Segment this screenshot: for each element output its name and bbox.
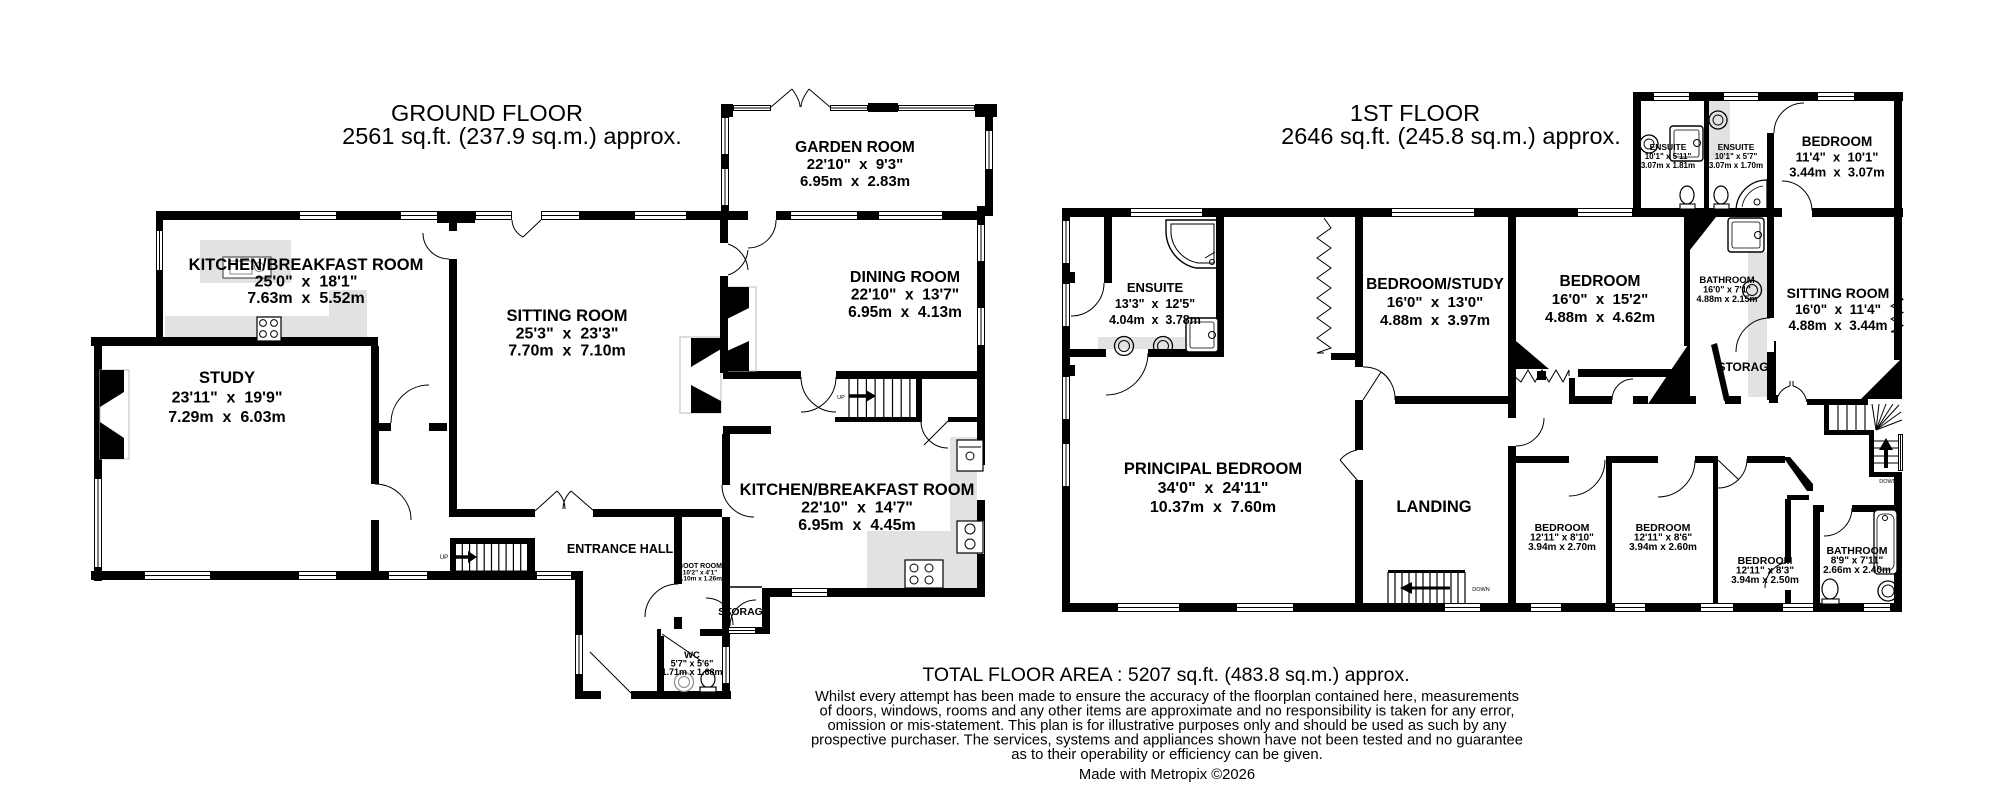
svg-text:STORAGE: STORAGE (1717, 360, 1776, 374)
svg-text:2561 sq.ft. (237.9 sq.m.) appr: 2561 sq.ft. (237.9 sq.m.) approx. (342, 123, 682, 149)
svg-text:as to their operability or eff: as to their operability or efficiency ca… (1011, 747, 1322, 763)
svg-text:10'1" x 5'7": 10'1" x 5'7" (1715, 152, 1758, 161)
svg-text:BEDROOM/STUDY: BEDROOM/STUDY (1366, 276, 1504, 293)
svg-text:STORAGE: STORAGE (718, 606, 770, 618)
svg-text:34'0" x 24'11": 34'0" x 24'11" (1158, 480, 1269, 497)
svg-text:LANDING: LANDING (1396, 498, 1471, 516)
svg-text:3.94m x 2.50m: 3.94m x 2.50m (1731, 575, 1799, 586)
svg-text:11'4" x 10'1": 11'4" x 10'1" (1796, 149, 1879, 164)
svg-text:25'0" x 18'1": 25'0" x 18'1" (255, 274, 358, 291)
svg-text:6.95m x 2.83m: 6.95m x 2.83m (800, 173, 910, 190)
svg-text:7.29m x 6.03m: 7.29m x 6.03m (168, 409, 285, 426)
svg-text:4.88m x 2.15m: 4.88m x 2.15m (1696, 294, 1757, 304)
svg-text:2646 sq.ft. (245.8 sq.m.) appr: 2646 sq.ft. (245.8 sq.m.) approx. (1281, 123, 1621, 149)
svg-text:TOTAL FLOOR AREA : 5207 sq.ft.: TOTAL FLOOR AREA : 5207 sq.ft. (483.8 sq… (922, 664, 1409, 686)
svg-text:10'1" x 5'11": 10'1" x 5'11" (1645, 152, 1692, 161)
svg-text:22'10" x 14'7": 22'10" x 14'7" (801, 500, 913, 517)
svg-text:3.44m x 3.07m: 3.44m x 3.07m (1789, 165, 1884, 180)
svg-text:KITCHEN/BREAKFAST ROOM: KITCHEN/BREAKFAST ROOM (740, 481, 975, 499)
svg-text:3.94m x 2.70m: 3.94m x 2.70m (1528, 542, 1596, 553)
svg-text:22'10" x 13'7": 22'10" x 13'7" (851, 287, 959, 304)
svg-text:Made with Metropix ©2026: Made with Metropix ©2026 (1079, 767, 1255, 783)
svg-text:7.63m x 5.52m: 7.63m x 5.52m (247, 290, 364, 307)
svg-text:PRINCIPAL BEDROOM: PRINCIPAL BEDROOM (1124, 460, 1302, 478)
svg-text:4.04m x 3.78m: 4.04m x 3.78m (1109, 313, 1201, 327)
svg-text:BEDROOM: BEDROOM (1802, 134, 1873, 149)
svg-text:SITTING ROOM: SITTING ROOM (507, 307, 628, 325)
svg-text:16'0" x 7'1": 16'0" x 7'1" (1703, 285, 1751, 295)
svg-text:23'11" x 19'9": 23'11" x 19'9" (172, 390, 283, 407)
svg-text:DOWN: DOWN (1879, 479, 1896, 485)
svg-text:UP: UP (837, 395, 845, 401)
svg-text:ENTRANCE HALL: ENTRANCE HALL (567, 542, 674, 556)
svg-text:16'0" x 11'4": 16'0" x 11'4" (1795, 302, 1881, 317)
svg-text:ENSUITE: ENSUITE (1127, 280, 1184, 295)
svg-text:UP: UP (440, 555, 448, 561)
svg-text:GARDEN ROOM: GARDEN ROOM (795, 139, 915, 156)
svg-text:13'3" x 12'5": 13'3" x 12'5" (1115, 297, 1195, 311)
svg-text:4.88m x 3.44m: 4.88m x 3.44m (1788, 318, 1887, 333)
svg-text:7.70m x 7.10m: 7.70m x 7.10m (508, 343, 625, 360)
svg-text:DINING ROOM: DINING ROOM (850, 269, 960, 286)
svg-text:4.88m x 3.97m: 4.88m x 3.97m (1380, 312, 1490, 329)
svg-text:25'3" x 23'3": 25'3" x 23'3" (516, 325, 619, 342)
svg-text:KITCHEN/BREAKFAST ROOM: KITCHEN/BREAKFAST ROOM (189, 256, 424, 274)
svg-text:16'0" x 13'0": 16'0" x 13'0" (1387, 294, 1483, 311)
svg-text:6.95m x 4.45m: 6.95m x 4.45m (798, 517, 915, 534)
svg-text:STUDY: STUDY (199, 369, 255, 387)
svg-text:ENSUITE: ENSUITE (1718, 142, 1755, 152)
svg-text:16'0" x 15'2": 16'0" x 15'2" (1552, 291, 1648, 308)
svg-text:2.66m x 2.40m: 2.66m x 2.40m (1823, 565, 1891, 576)
svg-text:3.10m x 1.26m: 3.10m x 1.26m (678, 576, 722, 583)
svg-text:3.07m x 1.81m: 3.07m x 1.81m (1641, 161, 1695, 170)
svg-text:6.95m x 4.13m: 6.95m x 4.13m (848, 304, 962, 321)
svg-text:22'10" x 9'3": 22'10" x 9'3" (807, 156, 903, 173)
svg-text:SITTING ROOM: SITTING ROOM (1787, 285, 1890, 301)
svg-text:4.88m x 4.62m: 4.88m x 4.62m (1545, 309, 1655, 326)
svg-text:3.94m x 2.60m: 3.94m x 2.60m (1629, 542, 1697, 553)
svg-text:ENSUITE: ENSUITE (1650, 142, 1687, 152)
svg-text:DOWN: DOWN (1472, 587, 1489, 593)
svg-text:BEDROOM: BEDROOM (1560, 273, 1641, 290)
svg-text:10.37m x 7.60m: 10.37m x 7.60m (1150, 499, 1276, 516)
svg-text:3.07m x 1.70m: 3.07m x 1.70m (1709, 161, 1763, 170)
svg-text:1.71m x 1.68m: 1.71m x 1.68m (661, 667, 722, 677)
